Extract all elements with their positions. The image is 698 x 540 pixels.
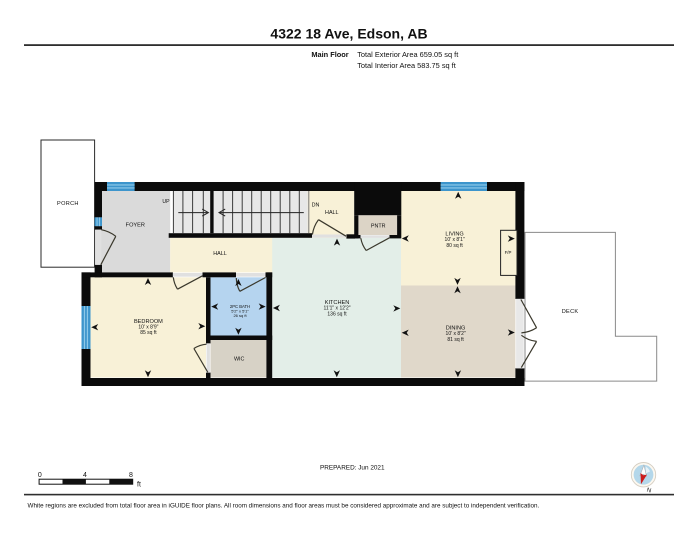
svg-text:DN: DN (312, 203, 320, 209)
svg-text:Total Interior Area 583.75 sq: Total Interior Area 583.75 sq ft (357, 61, 456, 70)
svg-text:8: 8 (129, 472, 133, 479)
svg-text:Total Exterior Area 659.05 sq: Total Exterior Area 659.05 sq ft (357, 50, 458, 59)
svg-text:White regions are excluded fro: White regions are excluded from total fl… (28, 503, 540, 510)
svg-text:136 sq ft: 136 sq ft (327, 311, 347, 317)
svg-text:85 sq ft: 85 sq ft (140, 330, 157, 336)
svg-text:PNTR: PNTR (371, 224, 386, 230)
svg-text:HALL: HALL (325, 210, 339, 216)
svg-text:FOYER: FOYER (126, 223, 145, 229)
svg-text:Main Floor: Main Floor (311, 50, 348, 59)
svg-text:81 sq ft: 81 sq ft (447, 337, 464, 343)
svg-text:0: 0 (38, 472, 42, 479)
svg-text:4322 18 Ave, Edson, AB: 4322 18 Ave, Edson, AB (270, 26, 427, 42)
svg-text:HALL: HALL (213, 251, 227, 257)
svg-text:UP: UP (162, 199, 170, 205)
svg-text:DECK: DECK (562, 309, 579, 315)
svg-text:4: 4 (83, 472, 87, 479)
svg-text:26 sq ft: 26 sq ft (233, 313, 247, 318)
svg-text:PORCH: PORCH (57, 201, 79, 207)
svg-text:ft: ft (137, 482, 141, 489)
svg-text:PREPARED: Jun 2021: PREPARED: Jun 2021 (320, 464, 385, 471)
svg-text:WIC: WIC (234, 356, 245, 362)
svg-text:80 sq ft: 80 sq ft (446, 243, 463, 249)
svg-text:F/P: F/P (505, 250, 512, 255)
